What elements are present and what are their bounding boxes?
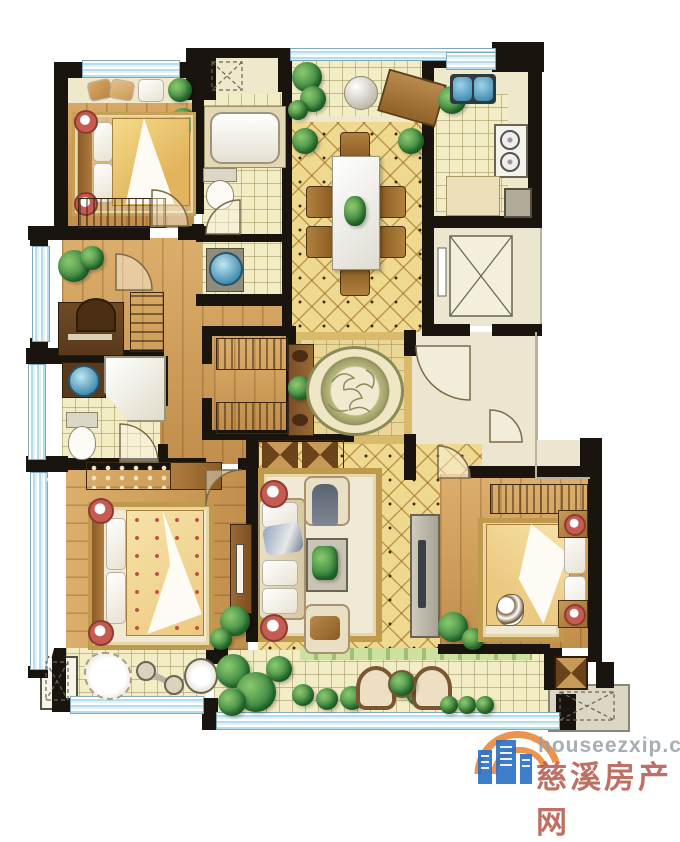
dumbbell [137, 662, 183, 694]
door-study [116, 254, 152, 290]
medallion-swirls [328, 370, 374, 412]
door-apartment-entry [416, 346, 470, 400]
floor-plan-screenshot: { "image_type": "residential-floor-plan-… [0, 0, 680, 790]
door-master-bedroom [206, 470, 242, 506]
bay-window-pane [48, 478, 62, 666]
elevator-car [438, 236, 512, 316]
door-bedroom-top-left [152, 190, 188, 226]
door-neighbor [490, 410, 522, 442]
plan-overlay [0, 0, 680, 790]
door-bedroom-right [438, 446, 470, 478]
watermark-brand: 慈溪房产网 [536, 752, 680, 842]
watermark: houseezxip.com 慈溪房产网 [430, 718, 680, 790]
landing-edge [536, 332, 590, 478]
door-bathroom-second [120, 424, 158, 462]
door-bathroom-main [206, 200, 240, 234]
vent-shaft-box [212, 62, 242, 90]
